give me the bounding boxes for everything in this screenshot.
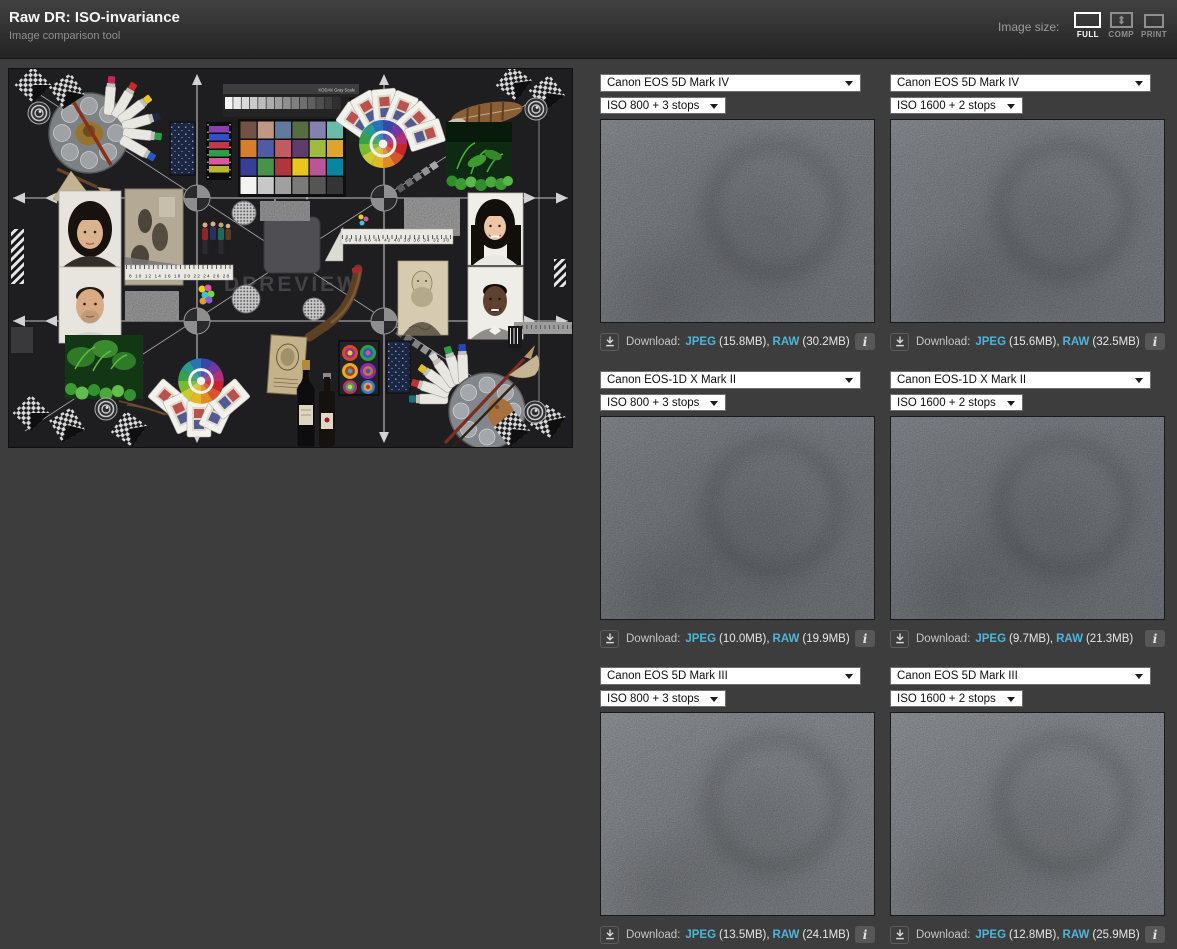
raw-size: (30.2MB) xyxy=(802,336,849,348)
chevron-down-icon xyxy=(845,81,853,86)
raw-size: (32.5MB) xyxy=(1092,336,1139,348)
download-icon xyxy=(895,929,905,940)
comp-size-icon xyxy=(1110,12,1133,28)
camera-select[interactable]: Canon EOS 5D Mark IV xyxy=(890,74,1151,92)
raw-link[interactable]: RAW xyxy=(773,336,800,348)
download-button[interactable] xyxy=(600,333,619,351)
size-print-button[interactable]: PRINT xyxy=(1141,12,1167,39)
app-header: Raw DR: ISO-invariance Image comparison … xyxy=(0,0,1177,59)
iso-select-value: ISO 800 + 3 stops xyxy=(607,100,699,112)
jpeg-link[interactable]: JPEG xyxy=(685,336,716,348)
comparison-panel: Canon EOS 5D Mark III ISO 800 + 3 stops … xyxy=(600,667,875,947)
full-size-icon xyxy=(1074,12,1101,28)
comparison-crop[interactable] xyxy=(890,712,1165,916)
iso-select[interactable]: ISO 1600 + 2 stops xyxy=(890,394,1023,411)
info-button[interactable]: i xyxy=(1145,333,1165,350)
download-icon xyxy=(605,633,615,644)
chevron-down-icon xyxy=(1007,104,1015,109)
chevron-down-icon xyxy=(710,104,718,109)
download-button[interactable] xyxy=(890,333,909,351)
download-icon xyxy=(895,633,905,644)
noise-overlay xyxy=(891,417,1164,619)
size-comp-button[interactable]: COMP xyxy=(1108,12,1134,39)
camera-select-value: Canon EOS-1D X Mark II xyxy=(607,374,736,386)
raw-size: (21.3MB) xyxy=(1086,633,1133,645)
fabric-swatch xyxy=(170,122,195,175)
noise-overlay xyxy=(601,713,874,915)
comparison-crop[interactable] xyxy=(890,416,1165,620)
jpeg-link[interactable]: JPEG xyxy=(975,633,1006,645)
hatch-strip-left xyxy=(11,229,24,284)
image-size-label: Image size: xyxy=(998,20,1059,34)
noise-overlay xyxy=(601,120,874,322)
image-size-controls: Image size: FULL COMP PRINT xyxy=(998,12,1167,39)
chevron-down-icon xyxy=(1007,401,1015,406)
raw-link[interactable]: RAW xyxy=(1056,633,1083,645)
camera-select[interactable]: Canon EOS 5D Mark IV xyxy=(600,74,861,92)
chevron-down-icon xyxy=(1007,697,1015,702)
chevron-down-icon xyxy=(845,378,853,383)
jpeg-size: (15.6MB), xyxy=(1009,336,1060,348)
iso-select[interactable]: ISO 800 + 3 stops xyxy=(600,97,726,114)
noise-overlay xyxy=(601,417,874,619)
jpeg-link[interactable]: JPEG xyxy=(975,336,1006,348)
jpeg-link[interactable]: JPEG xyxy=(685,633,716,645)
chevron-down-icon xyxy=(1135,81,1143,86)
iso-select-value: ISO 800 + 3 stops xyxy=(607,693,699,705)
raw-link[interactable]: RAW xyxy=(773,929,800,941)
test-scene-svg: DPREVIEW KODAK Gray Scale xyxy=(9,69,572,447)
chevron-down-icon xyxy=(710,401,718,406)
comparison-panel: Canon EOS-1D X Mark II ISO 1600 + 2 stop… xyxy=(890,371,1165,651)
camera-select[interactable]: Canon EOS 5D Mark III xyxy=(600,667,861,685)
camera-select-value: Canon EOS 5D Mark III xyxy=(897,670,1018,682)
download-button[interactable] xyxy=(890,926,909,944)
portrait-asian-woman xyxy=(468,193,523,265)
chevron-down-icon xyxy=(1135,378,1143,383)
comparison-panel: Canon EOS 5D Mark IV ISO 800 + 3 stops D… xyxy=(600,74,875,354)
color-checker xyxy=(238,119,346,197)
raw-link[interactable]: RAW xyxy=(1063,929,1090,941)
portrait-woman xyxy=(59,191,121,267)
halftone-disc-1 xyxy=(232,201,256,225)
jpeg-size: (13.5MB), xyxy=(719,929,770,941)
iso-select[interactable]: ISO 800 + 3 stops xyxy=(600,690,726,707)
download-bar: Download: JPEG (15.6MB), RAW (32.5MB) i xyxy=(890,331,1165,352)
sticker-sheet xyxy=(339,341,379,395)
info-button[interactable]: i xyxy=(855,926,875,943)
chevron-down-icon xyxy=(710,697,718,702)
comparison-panel: Canon EOS 5D Mark III ISO 1600 + 2 stops… xyxy=(890,667,1165,947)
portrait-etching-old-man xyxy=(398,261,448,335)
gray-patch-left xyxy=(11,327,33,353)
download-button[interactable] xyxy=(600,926,619,944)
download-label: Download: xyxy=(626,633,680,645)
print-size-caption: PRINT xyxy=(1141,30,1167,39)
download-label: Download: xyxy=(916,633,970,645)
info-button[interactable]: i xyxy=(855,630,875,647)
comparison-panel: Canon EOS 5D Mark IV ISO 1600 + 2 stops … xyxy=(890,74,1165,354)
info-button[interactable]: i xyxy=(1145,926,1165,943)
download-bar: Download: JPEG (15.8MB), RAW (30.2MB) i xyxy=(600,331,875,352)
download-icon xyxy=(605,336,615,347)
full-size-caption: FULL xyxy=(1077,30,1099,39)
download-bar: Download: JPEG (10.0MB), RAW (19.9MB) i xyxy=(600,628,875,649)
ruler-a-numbers: 8 10 12 14 16 18 20 22 24 26 28 xyxy=(129,274,229,279)
camera-select[interactable]: Canon EOS-1D X Mark II xyxy=(890,371,1151,389)
jpeg-link[interactable]: JPEG xyxy=(975,929,1006,941)
comparison-crop[interactable] xyxy=(600,712,875,916)
fabric-swatch-2 xyxy=(387,341,410,393)
portrait-man xyxy=(59,267,121,343)
page-title: Raw DR: ISO-invariance xyxy=(9,9,180,26)
camera-select[interactable]: Canon EOS 5D Mark III xyxy=(890,667,1151,685)
camera-select-value: Canon EOS 5D Mark IV xyxy=(607,77,729,89)
updown-arrow-icon xyxy=(1117,15,1126,25)
plant-box-top xyxy=(446,122,513,191)
chevron-down-icon xyxy=(845,674,853,679)
download-label: Download: xyxy=(626,336,680,348)
download-bar: Download: JPEG (13.5MB), RAW (24.1MB) i xyxy=(600,924,875,945)
jpeg-size: (12.8MB), xyxy=(1009,929,1060,941)
raw-size: (19.9MB) xyxy=(802,633,849,645)
raw-link[interactable]: RAW xyxy=(1063,336,1090,348)
chevron-down-icon xyxy=(1135,674,1143,679)
noise-overlay xyxy=(891,713,1164,915)
info-button[interactable]: i xyxy=(1145,630,1165,647)
jpeg-size: (10.0MB), xyxy=(719,633,770,645)
iso-select-value: ISO 1600 + 2 stops xyxy=(897,397,996,409)
hatch-strip-right xyxy=(554,259,566,287)
camera-select-value: Canon EOS 5D Mark IV xyxy=(897,77,1019,89)
camera-select[interactable]: Canon EOS-1D X Mark II xyxy=(600,371,861,389)
comp-size-caption: COMP xyxy=(1108,30,1134,39)
size-full-button[interactable]: FULL xyxy=(1074,12,1101,39)
camera-select-value: Canon EOS 5D Mark III xyxy=(607,670,728,682)
halftone-disc-2 xyxy=(232,285,260,313)
page-subtitle: Image comparison tool xyxy=(9,30,120,42)
download-icon xyxy=(605,929,615,940)
comparison-crop[interactable] xyxy=(600,119,875,323)
comparison-crop[interactable] xyxy=(890,119,1165,323)
app-root: Raw DR: ISO-invariance Image comparison … xyxy=(0,0,1177,949)
jpeg-link[interactable]: JPEG xyxy=(685,929,716,941)
iso-select[interactable]: ISO 800 + 3 stops xyxy=(600,394,726,411)
raw-size: (24.1MB) xyxy=(802,929,849,941)
download-label: Download: xyxy=(916,929,970,941)
raw-size: (25.9MB) xyxy=(1092,929,1139,941)
download-label: Download: xyxy=(916,336,970,348)
iso-select[interactable]: ISO 1600 + 2 stops xyxy=(890,690,1023,707)
info-button[interactable]: i xyxy=(855,333,875,350)
iso-select[interactable]: ISO 1600 + 2 stops xyxy=(890,97,1023,114)
camera-select-value: Canon EOS-1D X Mark II xyxy=(897,374,1026,386)
jpeg-size: (15.8MB), xyxy=(719,336,770,348)
test-scene-image[interactable]: DPREVIEW KODAK Gray Scale xyxy=(8,68,573,448)
comparison-panel: Canon EOS-1D X Mark II ISO 800 + 3 stops… xyxy=(600,371,875,651)
kodak-label: KODAK Gray Scale xyxy=(318,88,355,93)
download-button[interactable] xyxy=(890,630,909,648)
raw-link[interactable]: RAW xyxy=(773,633,800,645)
print-size-icon xyxy=(1144,14,1164,28)
ruler-b-numbers: 50 48 46 44 42 40 38 36 34 32 30 xyxy=(345,238,449,243)
noise-overlay xyxy=(891,120,1164,322)
download-bar: Download: JPEG (9.7MB), RAW (21.3MB) i xyxy=(890,628,1165,649)
iso-select-value: ISO 1600 + 2 stops xyxy=(897,100,996,112)
comparison-crop[interactable] xyxy=(600,416,875,620)
download-icon xyxy=(895,336,905,347)
download-bar: Download: JPEG (12.8MB), RAW (25.9MB) i xyxy=(890,924,1165,945)
film-strip xyxy=(206,122,232,180)
jpeg-size: (9.7MB), xyxy=(1009,633,1053,645)
iso-select-value: ISO 1600 + 2 stops xyxy=(897,693,996,705)
download-button[interactable] xyxy=(600,630,619,648)
halftone-disc-3 xyxy=(303,298,325,320)
iso-select-value: ISO 800 + 3 stops xyxy=(607,397,699,409)
download-label: Download: xyxy=(626,929,680,941)
